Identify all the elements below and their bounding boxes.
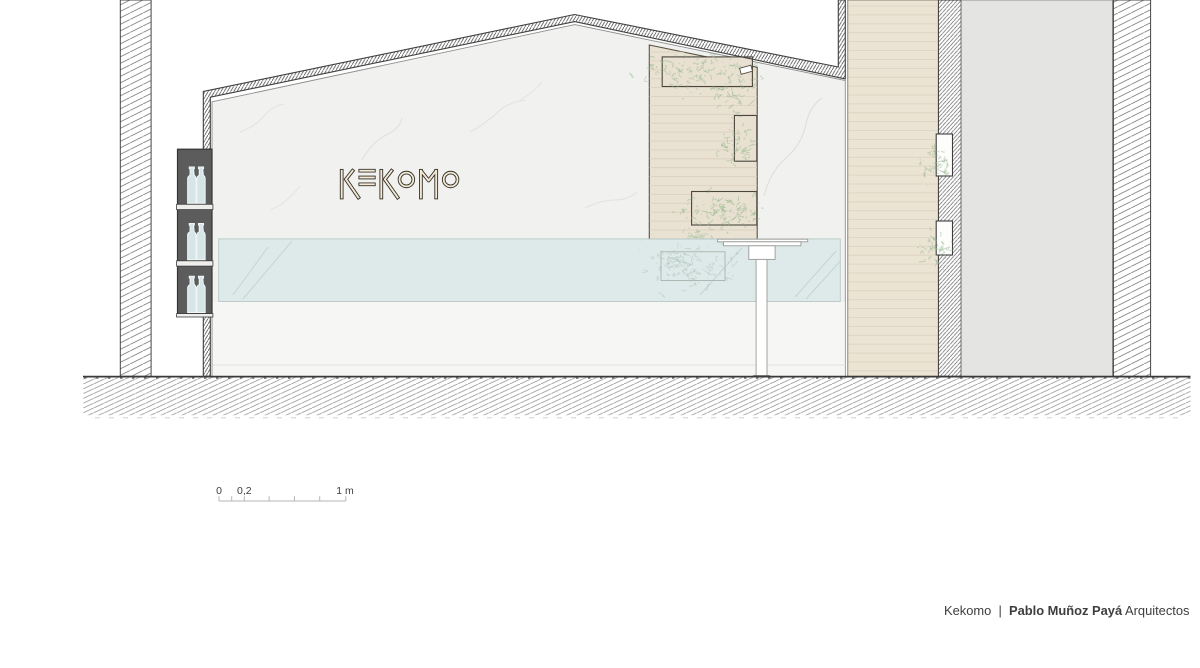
svg-text:0,2: 0,2: [237, 485, 252, 497]
svg-text:1 m: 1 m: [336, 485, 354, 497]
svg-text:Kekomo | Pablo Muñoz Payá Ar: Kekomo | Pablo Muñoz Payá Arquitectos: [944, 603, 1190, 618]
svg-text:0: 0: [216, 485, 222, 497]
